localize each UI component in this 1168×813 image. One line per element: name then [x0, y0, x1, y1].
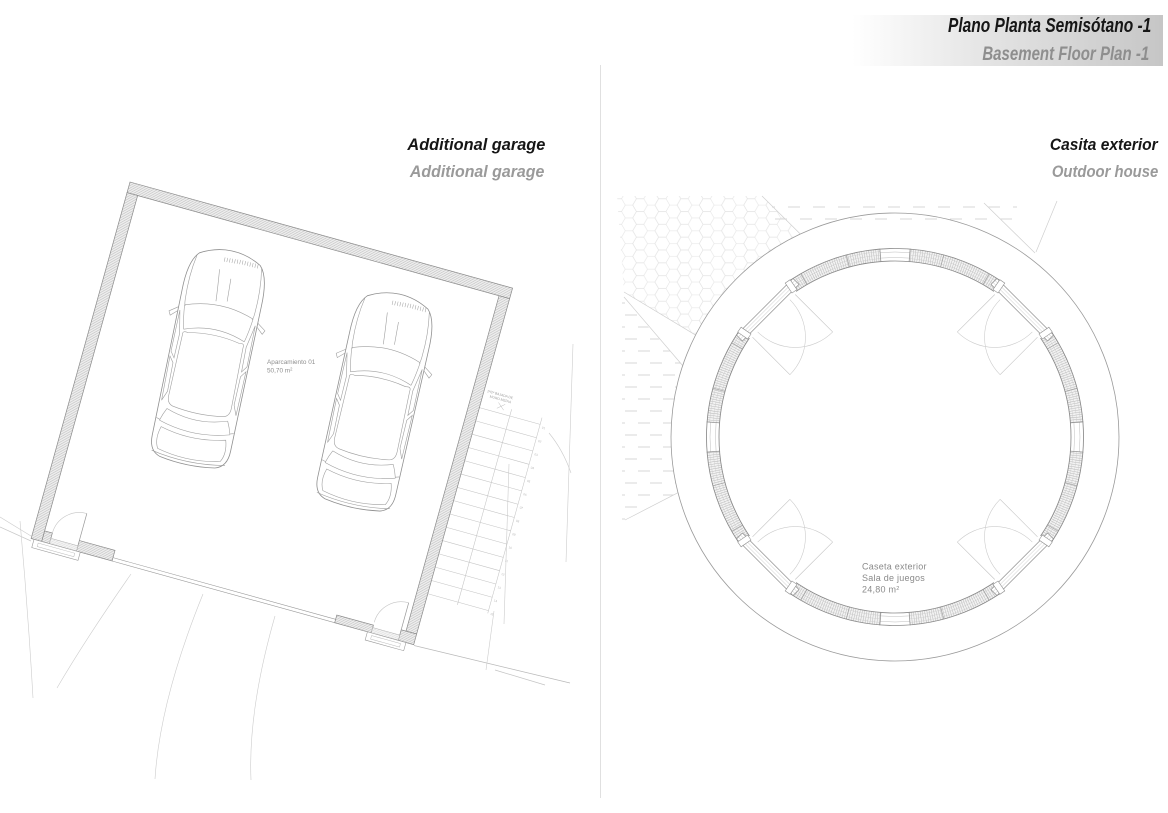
svg-text:10: 10	[508, 545, 513, 550]
svg-text:Aparcamiento 01: Aparcamiento 01	[267, 359, 316, 366]
svg-text:07: 07	[519, 505, 524, 510]
svg-text:11: 11	[504, 559, 508, 564]
svg-text:08: 08	[515, 519, 520, 524]
svg-text:14: 14	[493, 599, 498, 604]
svg-text:12: 12	[501, 572, 506, 577]
svg-text:05: 05	[527, 479, 532, 484]
svg-text:09: 09	[512, 532, 517, 537]
svg-text:13: 13	[497, 585, 502, 590]
svg-text:24,80 m2: 24,80 m2	[862, 585, 900, 595]
svg-text:02: 02	[538, 439, 543, 444]
svg-text:04: 04	[530, 466, 535, 471]
svg-text:06: 06	[523, 492, 528, 497]
svg-text:50,70 m2: 50,70 m2	[267, 367, 293, 375]
svg-text:03: 03	[534, 452, 539, 457]
svg-text:Sala de juegos: Sala de juegos	[862, 573, 925, 583]
svg-text:Caseta exterior: Caseta exterior	[862, 562, 927, 572]
svg-text:01: 01	[541, 426, 546, 431]
